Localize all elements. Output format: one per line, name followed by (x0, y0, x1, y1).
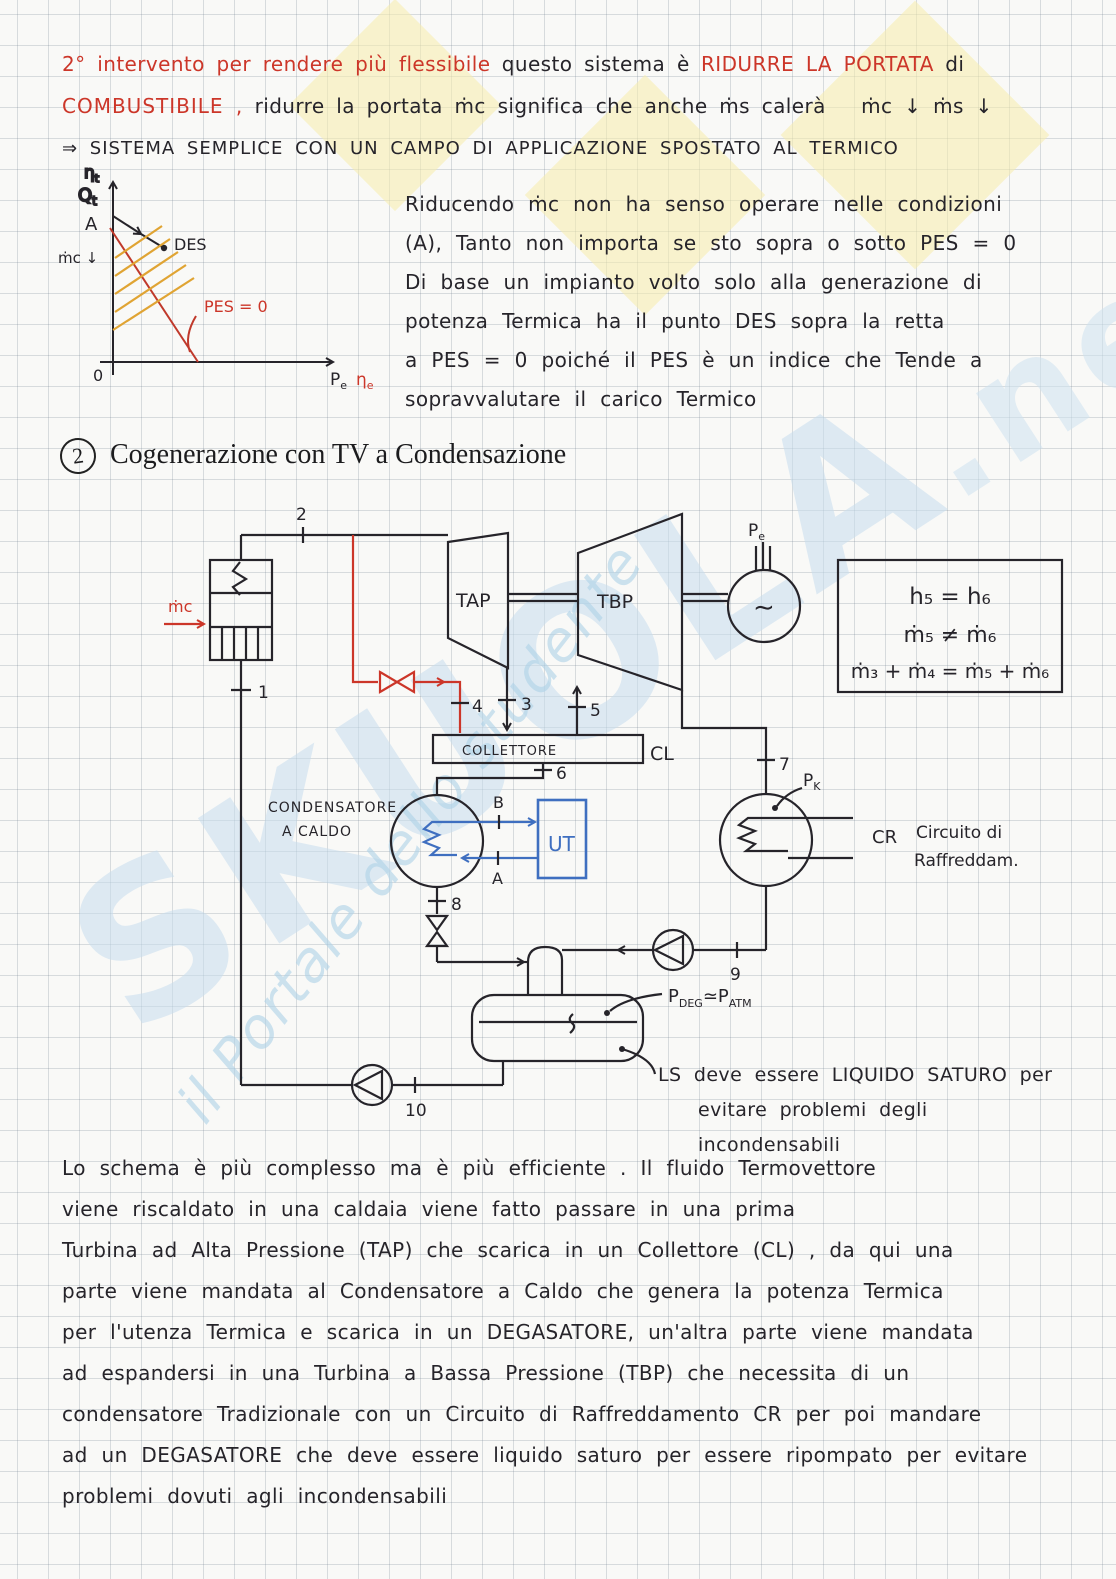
note-line: ad espandersi in una Turbina a Bassa Pre… (62, 1361, 1082, 1385)
y-axis-label-q: Qt (78, 185, 97, 208)
cr-label: CR (872, 827, 897, 848)
hot-condenser (391, 795, 483, 887)
note-line: Lo schema è più complesso ma è più effic… (62, 1156, 1082, 1180)
note-line: evitare problemi degli (698, 1099, 1052, 1121)
turbine-tap (448, 533, 508, 668)
hatching (113, 226, 194, 330)
cold-condenser-pk (720, 794, 812, 886)
note-line: condensatore Tradizionale con un Circuit… (62, 1402, 1082, 1426)
pk-label: PK (803, 771, 821, 793)
pes-zero-line (110, 228, 198, 362)
note-line: incondensabili (698, 1134, 1052, 1156)
state-label-6: 6 (556, 764, 567, 784)
pump-9 (653, 930, 693, 970)
boiler-coil (233, 562, 246, 595)
note-line: LS deve essere LIQUIDO SATURO per (658, 1064, 1052, 1086)
cr-text-2: Raffreddam. (914, 851, 1019, 871)
equation-box: h₅ = h₆ ṁ₅ ≠ ṁ₆ ṁ₃ + ṁ₄ = ṁ₅ + ṁ₆ (838, 560, 1062, 692)
state-label-b: B (493, 793, 504, 812)
pipe-2 (241, 535, 448, 1085)
pe-label: Pe (748, 521, 765, 543)
pipe-10 (241, 1061, 503, 1085)
intro-segment: ṁc ↓ ṁs ↓ (861, 94, 993, 118)
note-line: problemi dovuti agli incondensabili (62, 1484, 1082, 1508)
generator (728, 570, 800, 642)
state-label-7: 7 (779, 755, 790, 775)
equation-3: ṁ₃ + ṁ₄ = ṁ₅ + ṁ₆ (851, 659, 1049, 683)
pipe-7 (682, 690, 766, 794)
degasser-squiggle (570, 1014, 574, 1033)
intro-note: 2° intervento per rendere più flessibile… (62, 52, 1072, 172)
mc-down-label: ṁc ↓ (58, 249, 98, 267)
ut-label: UT (548, 832, 576, 856)
note-line: ad un DEGASATORE che deve essere liquido… (62, 1443, 1082, 1467)
note-line: Riducendo ṁc non ha senso operare nelle … (405, 192, 1085, 216)
intro-segment: 2° intervento per rendere più flessibile (62, 52, 490, 76)
collettore-label: COLLETTORE (462, 744, 557, 759)
note-line: parte viene mandata al Condensatore a Ca… (62, 1279, 1082, 1303)
hot-condenser-coil (424, 822, 457, 855)
state-label-1: 1 (258, 683, 269, 703)
cr-text-1: Circuito di (916, 823, 1002, 843)
a-des-segment (141, 234, 164, 248)
degasser-chimney (528, 947, 562, 996)
note-line: ⇒ SISTEMA SEMPLICE CON UN CAMPO DI APPLI… (62, 138, 899, 159)
x-axis-label-eta: ηe (356, 370, 374, 392)
origin-label: 0 (93, 366, 103, 385)
note-line: 2° intervento per rendere più flessibile… (62, 52, 964, 76)
fuel-flow-label: ṁc (168, 597, 192, 616)
state-label-4: 4 (472, 697, 483, 717)
pk-pointer (777, 788, 802, 806)
state-label-2: 2 (296, 505, 307, 525)
valve-8 (427, 916, 447, 946)
state-label-5: 5 (590, 701, 601, 721)
closing-paragraph: Lo schema è più complesso ma è più effic… (62, 1156, 1082, 1525)
section-title: Cogenerazione con TV a Condensazione (110, 439, 566, 470)
collettore-box (433, 735, 643, 763)
equation-1: h₅ = h₆ (909, 584, 991, 610)
pipe-to-degasser (437, 946, 498, 962)
intro-segment: ridurre la portata ṁc significa che anch… (255, 94, 826, 118)
pump-9-rotor (655, 936, 683, 964)
plant-diagram: ṁc 2 1 4 TAP TBP (164, 505, 1062, 1121)
notebook-page: SKUOLA.net il Portale dello studente 2° … (0, 0, 1116, 1579)
boiler (210, 560, 272, 660)
pk-coil (739, 818, 788, 851)
equation-2: ṁ₅ ≠ ṁ₆ (904, 623, 997, 648)
pes-angle-arc (188, 316, 196, 352)
note-line: COMBUSTIBILE , ridurre la portata ṁc sig… (62, 94, 993, 118)
ls-pointer (622, 1049, 655, 1074)
hot-condenser-label-2: A CALDO (282, 824, 352, 840)
watermark-tagline: il Portale dello studente (165, 531, 657, 1135)
intro-segment: COMBUSTIBILE , (62, 94, 243, 118)
des-label: DES (174, 235, 207, 254)
note-line: (A), Tanto non importa se sto sopra o so… (405, 231, 1085, 255)
x-axis-label-p: Pe (330, 370, 347, 392)
point-a-label: A (85, 214, 98, 235)
state-label-9: 9 (730, 965, 741, 985)
ut-box (538, 800, 586, 878)
ls-note: LS deve essere LIQUIDO SATURO per evitar… (658, 1064, 1052, 1169)
degasser-vessel (472, 995, 643, 1061)
note-line: a PES = 0 poiché il PES è un indice che … (405, 348, 1085, 372)
pump-10 (352, 1065, 392, 1105)
pipe-9 (694, 886, 766, 950)
tbp-label: TBP (596, 591, 633, 613)
intro-segment: questo sistema è (502, 52, 690, 76)
cl-label: CL (650, 743, 674, 765)
pipe-6 (437, 763, 543, 795)
pump-10-rotor (355, 1071, 382, 1099)
side-note: Riducendo ṁc non ha senso operare nelle … (405, 192, 1085, 426)
intro-segment: RIDURRE LA PORTATA (701, 52, 934, 76)
intro-segment: di (945, 52, 964, 76)
note-line: Turbina ad Alta Pressione (TAP) che scar… (62, 1238, 1082, 1262)
turbine-tbp (578, 514, 682, 690)
state-label-3: 3 (521, 695, 532, 715)
tap-label: TAP (455, 590, 491, 612)
pdeg-pointer (610, 994, 662, 1011)
electrical-output (756, 542, 770, 570)
des-point (161, 245, 167, 251)
bypass-valve (380, 672, 414, 692)
note-line: Di base un impianto volto solo alla gene… (405, 270, 1085, 294)
section-number-badge: 2 (58, 436, 99, 477)
note-line: viene riscaldato in una caldaia viene fa… (62, 1197, 1082, 1221)
note-line: potenza Termica ha il punto DES sopra la… (405, 309, 1085, 333)
pk-pointer-dot (772, 805, 778, 811)
pdeg-pointer-dot (604, 1010, 610, 1016)
generator-symbol: ∼ (753, 593, 775, 623)
pes-chart: ηt Qt A DES ṁc ↓ PES = 0 0 Pe ηe (58, 163, 374, 392)
pdeg-label: PDEG≃PATM (668, 986, 752, 1010)
note-line: sopravvalutare il carico Termico (405, 387, 1085, 411)
section-heading: 2Cogenerazione con TV a Condensazione (60, 438, 566, 474)
bypass-line (353, 535, 460, 733)
note-line: per l'utenza Termica e scarica in un DEG… (62, 1320, 1082, 1344)
ls-pointer-dot (619, 1046, 625, 1052)
state-label-10: 10 (405, 1101, 427, 1121)
pes-zero-label: PES = 0 (204, 297, 268, 316)
a-des-segment (113, 216, 141, 234)
hot-condenser-label-1: CONDENSATORE (268, 800, 397, 816)
state-label-8: 8 (451, 895, 462, 915)
state-label-a: A (492, 869, 503, 888)
